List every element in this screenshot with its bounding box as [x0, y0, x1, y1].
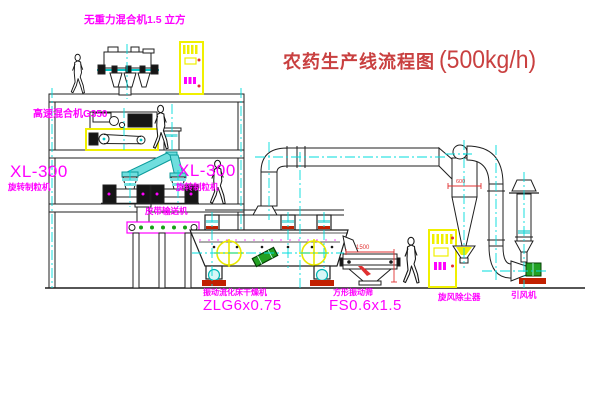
induced-draft-fan: [511, 261, 546, 284]
granulator-left: [101, 177, 151, 204]
label-granulator-left-model: XL-300: [10, 163, 68, 180]
label-granulator-right-model: XL-300: [178, 162, 236, 179]
pesticide-line-flow-diagram: 农药生产线流程图 (500kg/h) 无重力混合机1.5 立方 高速混合机G35…: [0, 0, 600, 403]
vibrating-screen: [340, 236, 400, 285]
label-granulator-left-name: 旋转制粒机: [8, 183, 51, 192]
label-dryer-name: 振动流化床干燥机: [203, 289, 267, 297]
label-belt-conveyor: 皮带输送机: [145, 207, 188, 216]
label-cyclone: 旋风除尘器: [438, 293, 481, 302]
label-gravity-free-mixer: 无重力混合机1.5 立方: [84, 15, 186, 26]
conveyor-legs: [133, 233, 191, 288]
page-title: 农药生产线流程图 (500kg/h): [283, 46, 545, 75]
label-screen-name: 方形振动筛: [333, 289, 373, 297]
title-capacity: (500kg/h): [439, 46, 536, 75]
label-screen-model: FS0.6x1.5: [329, 298, 402, 313]
label-dryer-model: ZLG6x0.75: [203, 298, 282, 313]
belt-conveyor: [127, 222, 199, 233]
dimension-cyclone-width: 600: [456, 180, 465, 186]
gravity-free-mixer: [97, 47, 159, 95]
control-cabinet-bottom: [429, 230, 456, 287]
worker-ground-floor: [404, 237, 420, 283]
label-granulator-right-name: 旋转制粒机: [176, 183, 219, 192]
dimension-screen-length: 1500: [356, 245, 369, 251]
label-high-speed-mixer: 高速混合机G350: [33, 110, 107, 120]
label-fan: 引风机: [511, 291, 537, 300]
title-text: 农药生产线流程图: [283, 48, 435, 74]
worker-top-floor: [71, 54, 84, 93]
control-cabinet-top: [180, 42, 203, 94]
